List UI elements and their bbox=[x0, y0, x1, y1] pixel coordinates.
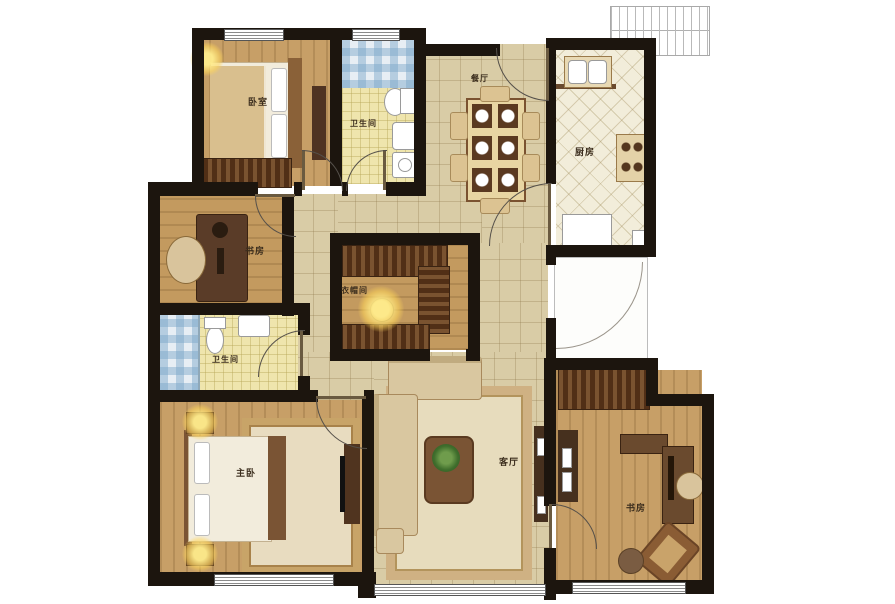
desk-chair bbox=[676, 472, 704, 500]
wall-segment bbox=[414, 36, 426, 194]
vanity-sink bbox=[238, 315, 270, 337]
bookshelf bbox=[558, 368, 650, 410]
window bbox=[214, 574, 334, 586]
sink-basin bbox=[588, 60, 607, 84]
wall-segment bbox=[546, 245, 556, 265]
wall-segment bbox=[644, 38, 656, 257]
ottoman bbox=[376, 528, 404, 554]
wall-segment bbox=[192, 28, 204, 194]
toilet-bowl bbox=[206, 326, 224, 354]
wall-segment bbox=[330, 233, 480, 245]
lamp-glow bbox=[182, 536, 218, 572]
room-label-kitchen: 厨房 bbox=[575, 149, 595, 158]
floor-plan: 卧室 卫生间 餐厅 厨房 书房 衣帽间 卫生间 主卧 客厅 书房 bbox=[0, 0, 895, 604]
desk-chair bbox=[166, 236, 206, 284]
wall-segment bbox=[544, 358, 556, 506]
room-label-bath-top: 卫生间 bbox=[350, 120, 377, 128]
wall-segment bbox=[330, 233, 342, 361]
window bbox=[224, 29, 284, 41]
room-label-study-left: 书房 bbox=[245, 248, 265, 257]
wall-segment bbox=[148, 182, 258, 196]
dining-chair bbox=[480, 86, 510, 102]
corridor-right-floor bbox=[478, 243, 548, 365]
desk-monitor bbox=[668, 456, 674, 500]
room-label-study-right: 书房 bbox=[626, 505, 646, 514]
cabinet-front bbox=[562, 472, 572, 492]
placemat bbox=[472, 136, 492, 160]
placemat bbox=[472, 104, 492, 128]
wall-segment bbox=[148, 303, 310, 315]
tv-panel bbox=[312, 86, 326, 160]
pillow bbox=[194, 442, 210, 484]
wall-segment bbox=[544, 358, 658, 370]
dining-chair bbox=[450, 154, 468, 182]
desk-keyboard bbox=[217, 248, 224, 274]
window bbox=[374, 584, 546, 596]
wall-segment bbox=[702, 394, 714, 594]
sink-basin bbox=[568, 60, 587, 84]
window bbox=[572, 582, 686, 594]
placemat bbox=[472, 168, 492, 192]
desk-monitor bbox=[212, 222, 228, 238]
desk-return bbox=[620, 434, 668, 454]
wall-segment bbox=[544, 548, 556, 584]
pillow bbox=[271, 114, 287, 158]
bed-headboard bbox=[288, 58, 302, 168]
dining-chair bbox=[522, 112, 540, 140]
wall-segment bbox=[468, 233, 480, 361]
refrigerator bbox=[562, 214, 612, 248]
tv-screen bbox=[340, 456, 345, 512]
wall-segment bbox=[546, 38, 656, 50]
placemat bbox=[498, 136, 518, 160]
wall-segment bbox=[148, 182, 160, 584]
room-label-closet: 衣帽间 bbox=[341, 287, 368, 295]
potted-plant bbox=[432, 444, 460, 472]
room-label-bath-mid: 卫生间 bbox=[212, 356, 239, 364]
bath-mid-shower bbox=[160, 315, 198, 391]
lamp-glow bbox=[182, 404, 218, 440]
wall-segment bbox=[386, 182, 426, 196]
cabinet-front bbox=[562, 448, 572, 468]
room-label-dining: 餐厅 bbox=[471, 75, 489, 83]
placemat bbox=[498, 104, 518, 128]
toilet-tank bbox=[204, 317, 226, 329]
bath-top-tub bbox=[342, 36, 416, 88]
wall-segment bbox=[294, 182, 302, 196]
tv-cabinet bbox=[344, 444, 360, 524]
bed-footboard bbox=[268, 436, 286, 540]
floor-cushion bbox=[618, 548, 644, 574]
pillow bbox=[194, 494, 210, 536]
shower-glass bbox=[198, 315, 200, 391]
dining-chair bbox=[522, 154, 540, 182]
room-label-living: 客厅 bbox=[499, 459, 519, 468]
pillow bbox=[271, 68, 287, 112]
room-label-master: 主卧 bbox=[236, 470, 256, 479]
bed-blanket bbox=[210, 66, 266, 162]
wall-segment bbox=[418, 44, 500, 56]
placemat bbox=[498, 168, 518, 192]
washer-drum bbox=[398, 158, 412, 172]
wall-segment bbox=[330, 349, 430, 361]
sofa bbox=[372, 394, 418, 536]
wall-segment bbox=[148, 390, 318, 402]
room-label-bedroom-top: 卧室 bbox=[248, 99, 268, 108]
window bbox=[352, 29, 400, 41]
dining-chair bbox=[450, 112, 468, 140]
wall-segment bbox=[546, 245, 656, 257]
